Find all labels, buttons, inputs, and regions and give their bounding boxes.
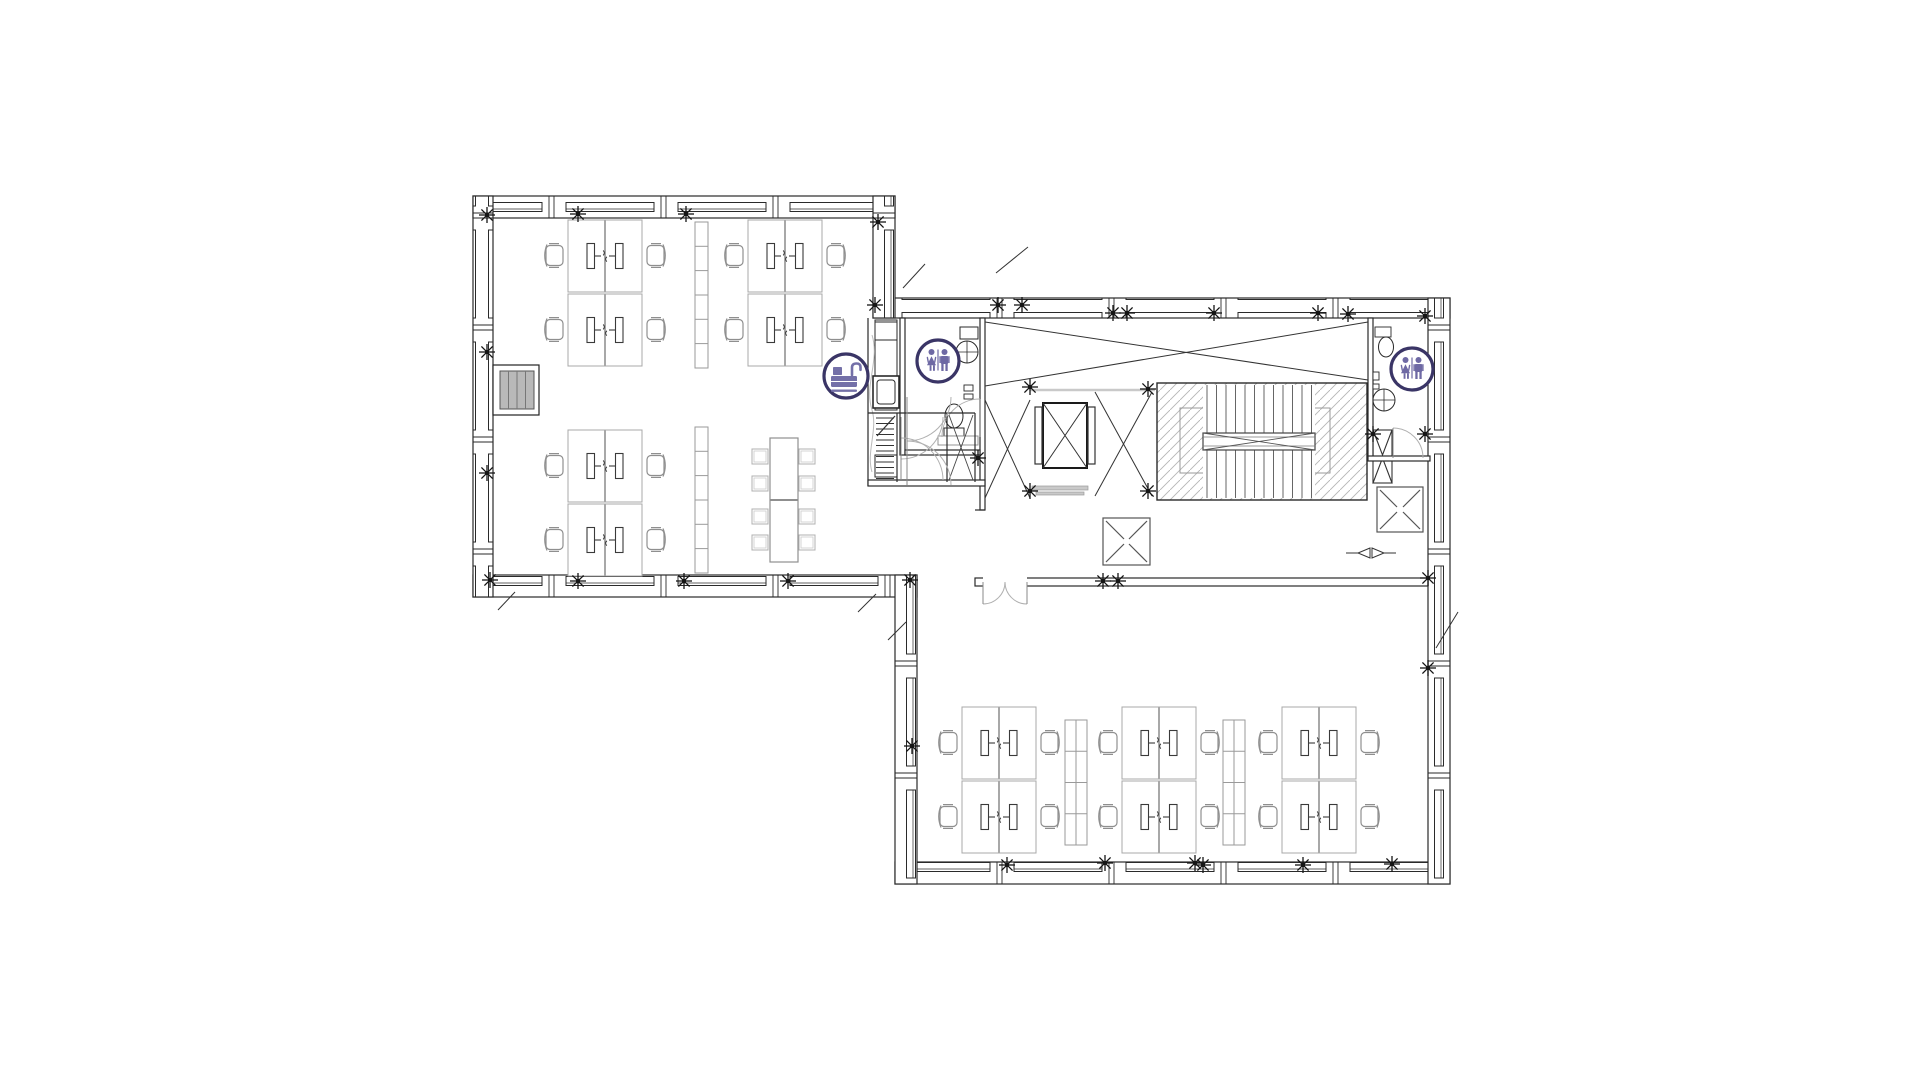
wc-figures-glyph — [927, 349, 950, 371]
column-marker — [676, 573, 692, 589]
section-arrows — [1346, 548, 1396, 558]
column-marker — [570, 206, 586, 222]
column-marker — [1014, 297, 1030, 313]
kitchenette-room — [868, 318, 905, 486]
column-marker — [1097, 855, 1113, 871]
column-marker — [1365, 426, 1381, 442]
column-marker — [870, 214, 886, 230]
column-marker — [1310, 305, 1326, 321]
meeting-table — [752, 438, 815, 562]
desk-cluster — [939, 707, 1060, 853]
column-marker — [1195, 857, 1211, 873]
wall-right-wing-right — [1428, 298, 1450, 884]
column-marker — [1206, 305, 1222, 321]
floor-box-right — [1377, 487, 1423, 532]
column-marker — [1022, 483, 1038, 499]
column-marker — [1384, 856, 1400, 872]
storage-divider — [1065, 720, 1087, 845]
floor-box-left — [1103, 518, 1150, 565]
column-marker — [570, 573, 586, 589]
column-marker — [1420, 660, 1436, 676]
storage-divider — [695, 427, 708, 573]
column-marker — [1140, 381, 1156, 397]
storage-divider — [695, 222, 708, 368]
core-south-wall — [975, 510, 1428, 604]
stair-core — [1157, 383, 1367, 500]
restroom-icon-left — [917, 340, 959, 382]
desk-cluster — [1099, 707, 1220, 853]
column-marker — [1105, 305, 1121, 321]
shaft-small — [949, 415, 973, 480]
column-marker — [1095, 573, 1111, 589]
kitchenette-icon — [824, 354, 868, 398]
storage-divider — [1223, 720, 1245, 845]
restroom-icon-right — [1391, 348, 1433, 390]
column-marker — [867, 297, 883, 313]
column-marker — [1417, 426, 1433, 442]
elevator-sill — [1032, 486, 1088, 490]
wall-bottom-wing-left — [895, 575, 917, 884]
column-marker — [990, 297, 1006, 313]
column-marker — [678, 206, 694, 222]
column-marker — [1022, 379, 1038, 395]
column-marker — [970, 450, 986, 466]
column-marker — [999, 857, 1015, 873]
column-marker — [1119, 305, 1135, 321]
elevator-sill — [1036, 492, 1084, 495]
wc-figures-glyph — [1401, 357, 1424, 379]
wall-junction-vertical — [873, 196, 895, 318]
desk-cluster — [545, 430, 666, 576]
floor-plan-drawing — [0, 0, 1920, 1080]
void-cross — [985, 322, 1368, 386]
wall-bottom-wing-bottom — [895, 862, 1450, 884]
elevator-bank — [985, 390, 1155, 498]
column-marker — [1340, 306, 1356, 322]
column-marker — [1140, 483, 1156, 499]
column-marker — [1295, 857, 1311, 873]
column-marker — [482, 572, 498, 588]
floor-plan-canvas — [0, 0, 1920, 1080]
column-marker — [902, 572, 918, 588]
desk-cluster — [725, 220, 846, 366]
column-marker — [1417, 308, 1433, 324]
column-marker — [904, 738, 920, 754]
desk-cluster — [545, 220, 666, 366]
column-marker — [1110, 573, 1126, 589]
entry-stair — [493, 365, 539, 415]
column-marker — [1420, 570, 1436, 586]
wall-left-wing-bottom — [473, 575, 917, 597]
desk-cluster — [1259, 707, 1380, 853]
wall-right-wing-top — [873, 298, 1450, 318]
wall-left-wing-left — [473, 196, 493, 597]
column-marker — [780, 573, 796, 589]
